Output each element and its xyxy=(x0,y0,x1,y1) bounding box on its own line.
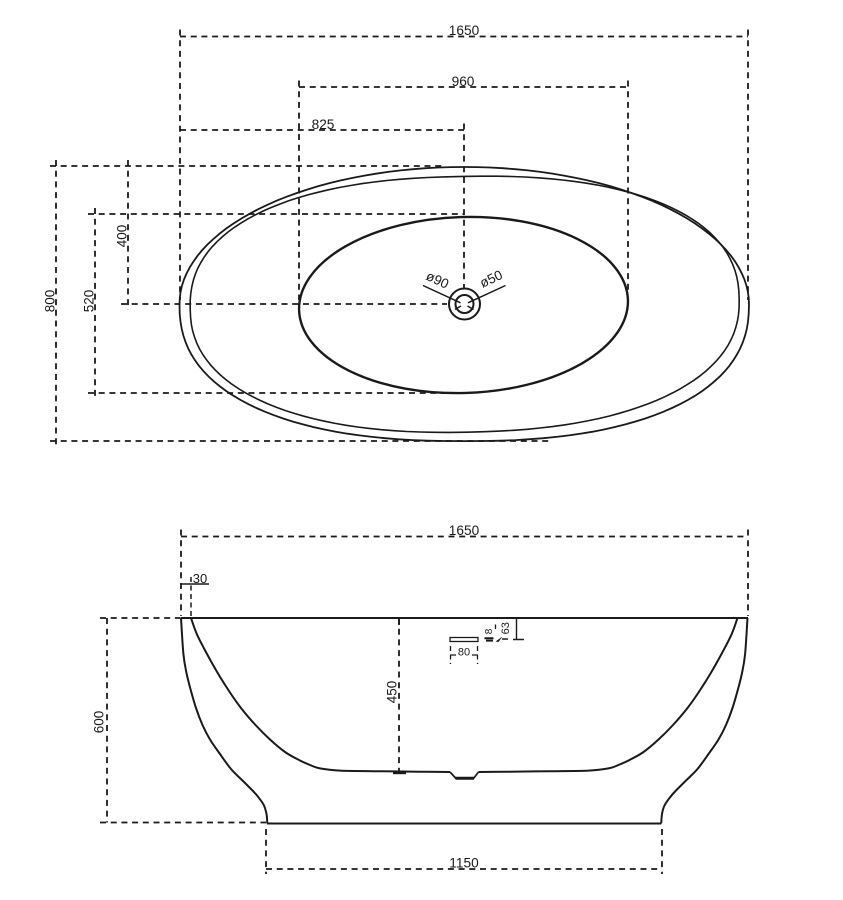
svg-text:825: 825 xyxy=(312,117,335,132)
svg-text:800: 800 xyxy=(43,290,58,313)
svg-text:600: 600 xyxy=(92,711,107,734)
svg-text:63: 63 xyxy=(500,622,512,634)
svg-text:450: 450 xyxy=(385,681,400,704)
svg-text:1650: 1650 xyxy=(449,23,480,38)
svg-text:8: 8 xyxy=(484,628,495,634)
svg-text:30: 30 xyxy=(193,571,207,586)
svg-text:1150: 1150 xyxy=(449,856,479,871)
svg-text:960: 960 xyxy=(452,74,475,89)
svg-text:1650: 1650 xyxy=(449,523,480,538)
svg-text:80: 80 xyxy=(458,647,470,659)
svg-text:400: 400 xyxy=(115,225,130,248)
svg-text:520: 520 xyxy=(82,290,97,313)
